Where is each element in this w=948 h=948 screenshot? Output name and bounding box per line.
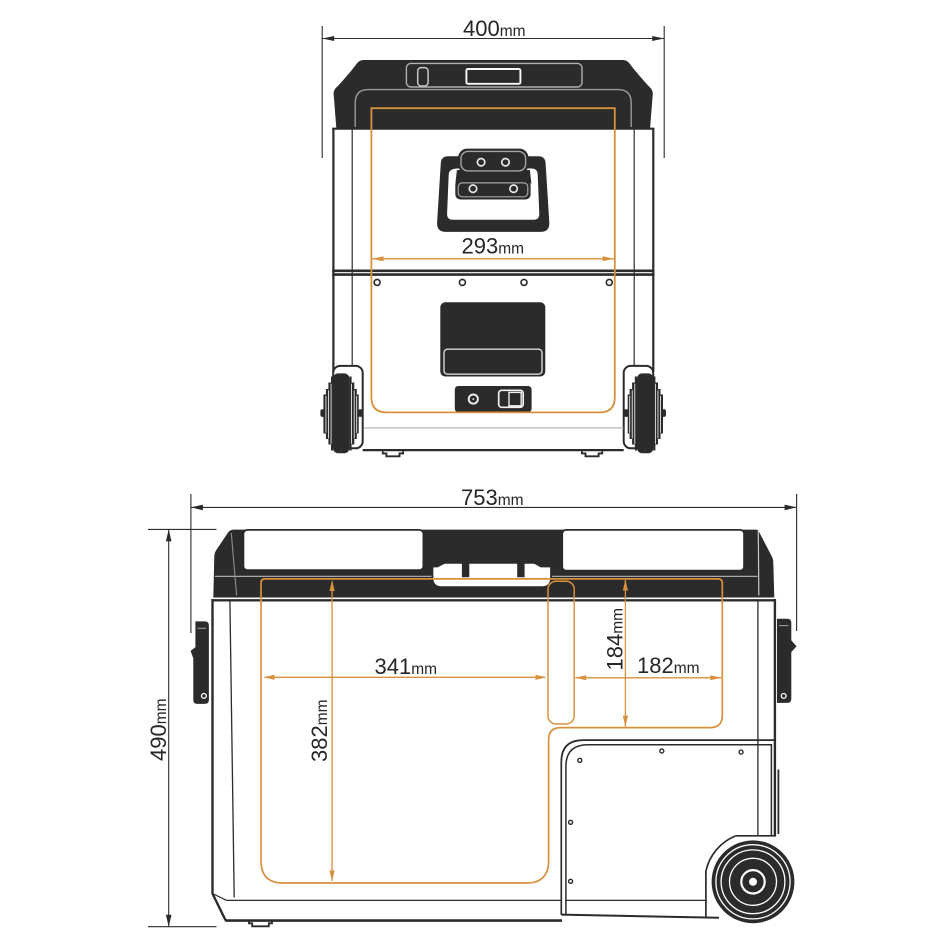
svg-text:184mm: 184mm [603,608,628,671]
svg-text:753mm: 753mm [461,485,524,510]
svg-text:490mm: 490mm [146,698,171,761]
svg-text:382mm: 382mm [307,699,332,762]
svg-text:182mm: 182mm [637,653,700,678]
svg-text:293mm: 293mm [462,233,525,258]
svg-text:341mm: 341mm [375,654,438,679]
svg-text:400mm: 400mm [463,16,526,41]
